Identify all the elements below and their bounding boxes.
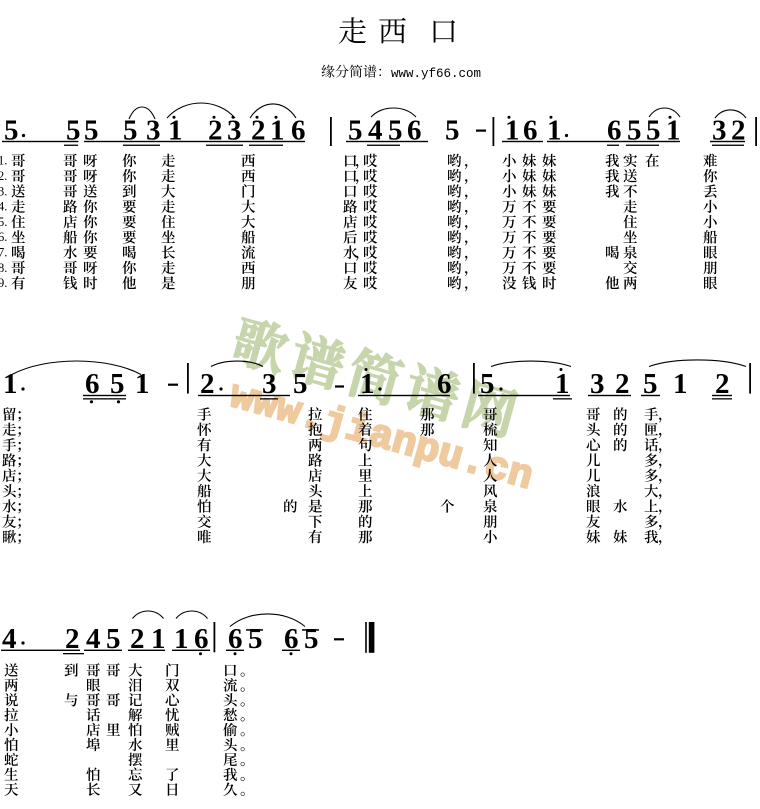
svg-text:3.: 3. <box>0 184 7 198</box>
svg-text:1.: 1. <box>0 154 7 168</box>
svg-text:1: 1 <box>673 368 688 400</box>
svg-text:6.: 6. <box>0 230 7 244</box>
svg-text:2.: 2. <box>0 169 7 183</box>
svg-text:5: 5 <box>304 623 319 655</box>
svg-text:www.yf66.com: www.yf66.com <box>391 67 481 81</box>
svg-text:5: 5 <box>293 368 308 400</box>
svg-text:9.: 9. <box>0 276 7 290</box>
svg-text:5.: 5. <box>0 215 7 229</box>
svg-text:7.: 7. <box>0 246 7 260</box>
svg-text:4.: 4. <box>0 200 7 214</box>
svg-text:8.: 8. <box>0 261 7 275</box>
svg-text:5: 5 <box>248 623 263 655</box>
svg-text:5: 5 <box>445 115 460 147</box>
